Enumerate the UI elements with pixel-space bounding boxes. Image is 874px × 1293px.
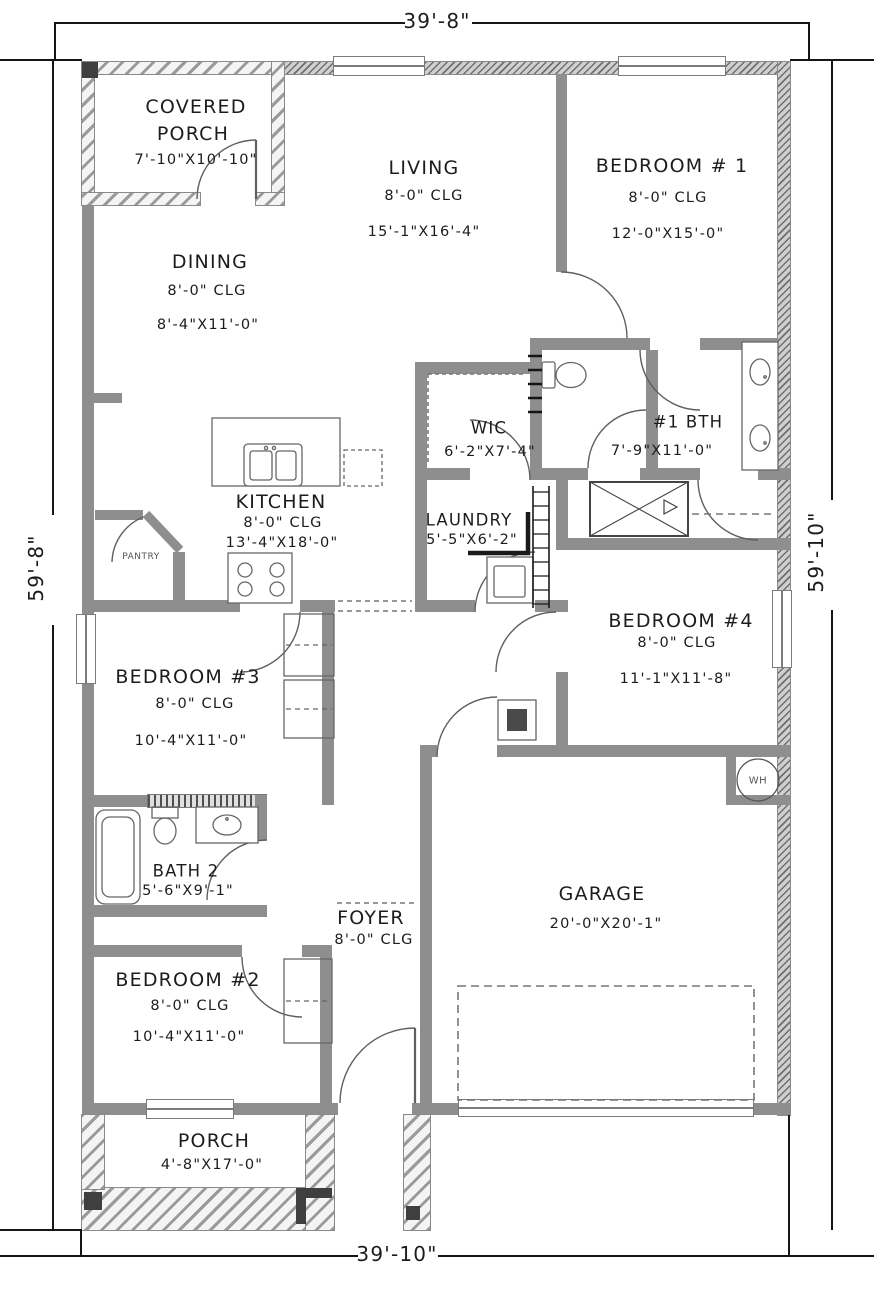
- shower-valve-icon: [664, 500, 677, 514]
- bath2-label: BATH 2: [153, 862, 220, 881]
- bedroom3-size: 10'-4"X11'-0": [135, 733, 248, 749]
- living-size: 15'-1"X16'-4": [368, 224, 481, 240]
- laundry-shelf-rungs: [533, 492, 549, 604]
- kitchen-label: KITCHEN: [236, 491, 327, 513]
- door-arc-garage-entry: [437, 697, 497, 757]
- dim-label-right: 59'-10": [804, 511, 828, 592]
- dim-ext-bottom-right: [788, 1115, 790, 1257]
- dim-label-bottom: 39'-10": [356, 1242, 437, 1266]
- foyer-label: FOYER: [337, 907, 405, 929]
- wc-toilet-bowl: [556, 363, 586, 388]
- bedroom1-label: BEDROOM # 1: [596, 155, 748, 177]
- living-label: LIVING: [389, 157, 460, 179]
- bath2-toilet-bowl: [154, 818, 176, 844]
- dim-line-top-b: [472, 22, 810, 24]
- garage-label: GARAGE: [559, 883, 646, 905]
- door-arc-bedroom1: [561, 272, 627, 338]
- bath2-tub-inner: [102, 817, 134, 897]
- dim-line-left-b: [52, 625, 54, 1230]
- living-ceiling: 8'-0" CLG: [384, 188, 463, 204]
- dim-line-top-a: [55, 22, 405, 24]
- bedroom1-size: 12'-0"X15'-0": [612, 226, 725, 242]
- wc-shelf-marks: [528, 356, 542, 412]
- dining-size: 8'-4"X11'-0": [157, 317, 259, 333]
- bedroom4-label: BEDROOM #4: [608, 610, 753, 632]
- garage-size: 20'-0"X20'-1": [550, 916, 663, 932]
- dim-ext-top-left: [54, 22, 56, 60]
- laundry-size: 5'-5"X6'-2": [426, 532, 518, 548]
- door-arc-wc: [588, 410, 646, 468]
- door-arc-bedroom3: [240, 612, 300, 672]
- dim-line-right-a: [831, 60, 833, 500]
- bedroom4-ceiling: 8'-0" CLG: [637, 635, 716, 651]
- door-arc-bedroom4: [496, 612, 556, 672]
- bath2-toilet-tank: [152, 807, 178, 818]
- dim-ext-bottom-left: [80, 1230, 82, 1257]
- dining-label: DINING: [172, 251, 248, 273]
- bath2-vanity: [196, 807, 258, 843]
- bedroom3-ceiling: 8'-0" CLG: [155, 696, 234, 712]
- bedroom2-label: BEDROOM #2: [115, 969, 260, 991]
- bedroom3-label: BEDROOM #3: [115, 666, 260, 688]
- dim-label-left: 59'-8": [24, 534, 48, 601]
- covered-porch-label-1: COVERED: [145, 96, 246, 118]
- dim-line-bottom-b: [438, 1255, 874, 1257]
- dim-line-left-a: [52, 60, 54, 515]
- wic-size: 6'-2"X7'-4": [444, 444, 536, 460]
- dim-ext-top-right: [808, 22, 810, 60]
- bath2-size: 5'-6"X9'-1": [142, 883, 234, 899]
- stove: [228, 553, 292, 603]
- bath1-label: #1 BTH: [653, 413, 724, 432]
- door-arc-bath1: [698, 480, 758, 540]
- pantry-label: PANTRY: [122, 552, 159, 562]
- porch-size: 4'-8"X17'-0": [161, 1157, 263, 1173]
- kitchen-ceiling: 8'-0" CLG: [243, 515, 322, 531]
- kitchen-size: 13'-4"X18'-0": [226, 535, 339, 551]
- laundry-label: LAUNDRY: [426, 511, 513, 530]
- door-arc-front: [340, 1028, 415, 1103]
- dim-label-top: 39'-8": [403, 9, 470, 33]
- bedroom4-size: 11'-1"X11'-8": [620, 671, 733, 687]
- bath1-size: 7'-9"X11'-0": [611, 443, 713, 459]
- water-heater-label: WH: [749, 776, 767, 787]
- dim-line-right-b: [831, 610, 833, 1230]
- porch-label: PORCH: [178, 1130, 250, 1152]
- bedroom2-ceiling: 8'-0" CLG: [150, 998, 229, 1014]
- dim-tick-bottom-left: [0, 1229, 82, 1231]
- dim-tick-left: [0, 59, 82, 61]
- covered-porch-label-2: PORCH: [157, 123, 229, 145]
- dining-ceiling: 8'-0" CLG: [167, 283, 246, 299]
- door-arc-bath1-hall: [640, 350, 700, 410]
- wc-toilet-tank: [542, 362, 555, 388]
- wic-label: WIC: [471, 419, 507, 438]
- dishwasher: [344, 450, 382, 486]
- hall-cabinet-shelf: [507, 709, 527, 731]
- door-arc-porch: [197, 140, 256, 199]
- cased-opening-kitchen: [338, 601, 412, 611]
- bedroom2-size: 10'-4"X11'-0": [133, 1029, 246, 1045]
- pantry-angled-wall: [146, 514, 180, 550]
- floor-plan: 39'-8" 39'-10" 59'-8" 59'-10" COVERED PO…: [0, 0, 874, 1293]
- bedroom1-ceiling: 8'-0" CLG: [628, 190, 707, 206]
- dim-line-bottom-a: [0, 1255, 358, 1257]
- foyer-ceiling: 8'-0" CLG: [334, 932, 413, 948]
- garage-door-clearance: [458, 986, 754, 1100]
- covered-porch-size: 7'-10"X10'-10": [134, 152, 257, 168]
